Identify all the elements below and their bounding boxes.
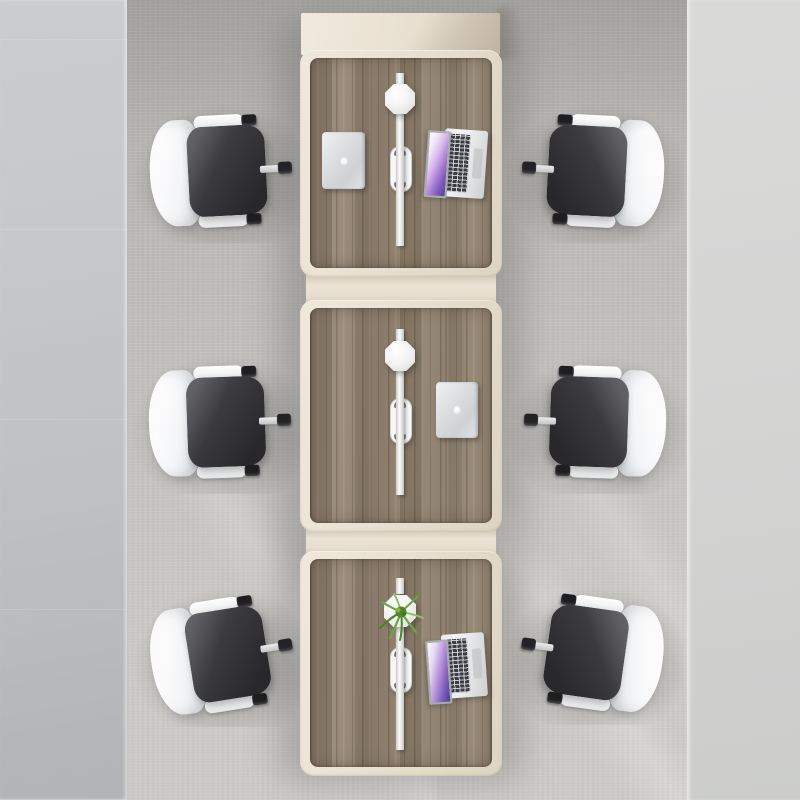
chair-seat (548, 375, 629, 468)
caster-wheel-icon (522, 161, 537, 174)
caster-wheel-icon (524, 414, 538, 426)
closed-macbook (322, 132, 365, 189)
divider-strip (396, 112, 404, 246)
caster-wheel-icon (277, 638, 293, 652)
caster-wheel-icon (555, 465, 570, 477)
caster-wheel-icon (277, 414, 291, 426)
chair-bottom-right (521, 597, 663, 709)
chair-seat (546, 124, 629, 218)
chair-body (522, 364, 668, 481)
apple-logo-icon (454, 406, 461, 414)
laptop-trackpad (472, 148, 483, 179)
caster-wheel-icon (241, 114, 257, 126)
chair-seat (185, 375, 266, 468)
office-top-view: Top-down view of a shared office worksta… (0, 0, 800, 800)
closed-macbook (436, 382, 478, 438)
lamp-shade (385, 84, 415, 114)
chair-seat (541, 602, 631, 702)
chair-body (147, 364, 293, 481)
divider-strip (396, 369, 404, 495)
desk-lamp (385, 84, 415, 114)
caster-wheel-icon (246, 213, 262, 225)
panel-shadow (498, 8, 522, 60)
caster-wheel-icon (236, 595, 253, 608)
chair-middle-left (149, 366, 291, 478)
floor-left (0, 0, 127, 800)
potted-plant (376, 588, 426, 644)
floor-right (687, 0, 800, 800)
caster-wheel-icon (252, 693, 269, 706)
chair-top-left (150, 115, 292, 227)
caster-wheel-icon (547, 691, 563, 704)
caster-wheel-icon (241, 366, 256, 378)
chair-middle-right (524, 366, 666, 478)
laptop-screen (425, 639, 452, 704)
lamp-shade (385, 341, 415, 371)
chair-body (143, 589, 301, 722)
caster-wheel-icon (521, 637, 537, 651)
caster-wheel-icon (552, 213, 568, 225)
caster-wheel-icon (245, 465, 260, 477)
caster-wheel-icon (557, 114, 573, 126)
chair-bottom-left (151, 599, 293, 711)
desk-end-panel (301, 13, 500, 55)
laptop-screen (424, 130, 452, 198)
chair-seat (182, 604, 273, 705)
caster-wheel-icon (278, 161, 293, 174)
chair-body (514, 588, 670, 719)
laptop-trackpad (472, 648, 483, 679)
caster-wheel-icon (560, 593, 576, 606)
chair-body (147, 111, 295, 230)
apple-logo-icon (340, 157, 347, 165)
chair-top-right (522, 115, 664, 227)
chair-body (519, 111, 667, 230)
open-laptop (424, 127, 489, 199)
caster-wheel-icon (559, 366, 574, 378)
open-laptop (424, 632, 489, 704)
desk-lamp (385, 341, 415, 371)
chair-seat (186, 124, 269, 218)
